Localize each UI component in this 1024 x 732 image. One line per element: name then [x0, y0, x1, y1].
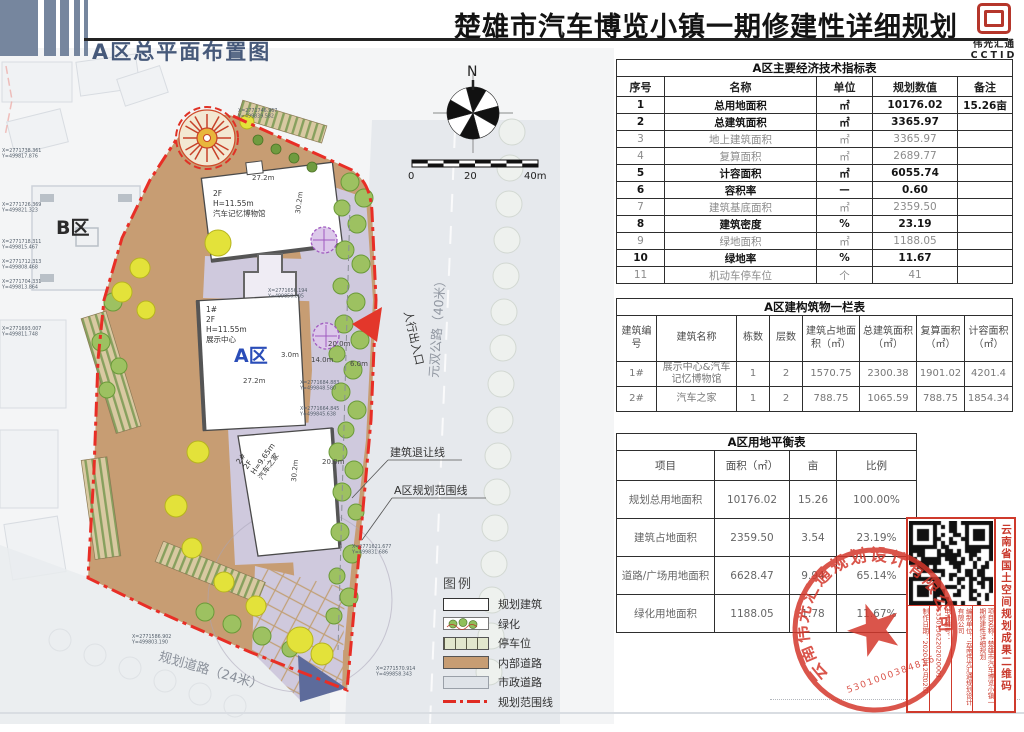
- svg-text:X=2771746.967Y=499839.582: X=2771746.967Y=499839.582: [237, 108, 277, 120]
- svg-text:H=11.55m: H=11.55m: [206, 325, 247, 334]
- buildings-table: A区建构筑物一栏表 建筑编号建筑名称 栋数层数 建筑占地面积（㎡）总建筑面积（㎡…: [616, 298, 1013, 412]
- svg-text:X=2771684.883Y=499848.580: X=2771684.883Y=499848.580: [299, 380, 339, 392]
- north-label: N: [467, 64, 477, 80]
- svg-text:27.2m: 27.2m: [243, 377, 266, 385]
- indicator-row: 5计容面积㎡6055.74: [617, 165, 1013, 182]
- legend-label: 内部道路: [498, 655, 542, 671]
- legend-green-swatch: [443, 617, 489, 630]
- svg-text:建筑退让线: 建筑退让线: [390, 445, 445, 459]
- indicator-row: 7建筑基底面积㎡2359.50: [617, 199, 1013, 216]
- svg-text:汽车记忆博物馆: 汽车记忆博物馆: [213, 208, 266, 218]
- indicator-row: 8建筑密度%23.19: [617, 216, 1013, 233]
- svg-text:14.0m: 14.0m: [311, 356, 334, 364]
- svg-text:20: 20: [464, 171, 477, 182]
- building-row: 1#展示中心&汽车记忆博物馆12 1570.752300.381901.0242…: [617, 362, 1013, 387]
- legend-label: 规划范围线: [498, 694, 553, 710]
- svg-text:0: 0: [408, 171, 414, 182]
- logo-text: 伟光汇通: [970, 36, 1018, 50]
- indicators-table-title: A区主要经济技术指标表: [617, 60, 1013, 77]
- indicator-row: 10绿地率%11.67: [617, 250, 1013, 267]
- land-balance-table-title: A区用地平衡表: [617, 434, 917, 451]
- indicator-row: 9绿地面积㎡1188.05: [617, 233, 1013, 250]
- stamp-star-icon: [840, 595, 907, 661]
- indicator-row: 2总建筑面积㎡3365.97: [617, 114, 1013, 131]
- svg-text:X=2771570.914Y=499858.343: X=2771570.914Y=499858.343: [375, 666, 415, 678]
- legend-label: 绿化: [498, 616, 520, 632]
- legend: 图例 规划建筑 绿化 停车位 内部道路 市政道路 规划范围线: [443, 573, 618, 714]
- building-row: 2#汽车之家12 788.751065.59788.751854.34: [617, 387, 1013, 412]
- svg-text:20.0m: 20.0m: [328, 340, 351, 348]
- company-logo: 伟光汇通 CCTID: [970, 3, 1018, 61]
- stamp-number: 5301000384816: [846, 654, 938, 696]
- legend-internal-road-swatch: [443, 656, 489, 669]
- svg-text:H=11.55m: H=11.55m: [213, 199, 254, 208]
- legend-municipal-road-swatch: [443, 676, 489, 689]
- drawing-title: A区总平面布置图: [92, 36, 271, 66]
- svg-text:1#: 1#: [206, 305, 217, 314]
- svg-text:A区规划范围线: A区规划范围线: [394, 483, 468, 497]
- svg-text:2F: 2F: [206, 315, 215, 324]
- svg-text:20.0m: 20.0m: [322, 458, 345, 466]
- company-stamp: 云南伟光汇通规划设计有限公司 5301000384816: [770, 528, 980, 732]
- legend-label: 停车位: [498, 635, 531, 651]
- qr-side-label: 云南省国土空间规划成果二维码: [994, 519, 1014, 711]
- svg-text:X=2771586.902Y=499803.190: X=2771586.902Y=499803.190: [131, 634, 171, 646]
- logo-subtext: CCTID: [970, 50, 1018, 61]
- svg-text:X=2771704.331Y=499813.864: X=2771704.331Y=499813.864: [1, 279, 41, 291]
- indicator-row: 11机动车停车位个41: [617, 267, 1013, 284]
- buildings-table-title: A区建构筑物一栏表: [617, 299, 1013, 316]
- svg-text:X=2771621.677Y=499831.686: X=2771621.677Y=499831.686: [351, 544, 391, 556]
- svg-text:2F: 2F: [213, 189, 222, 198]
- legend-label: 规划建筑: [498, 596, 542, 612]
- svg-text:展示中心: 展示中心: [206, 334, 236, 344]
- svg-text:X=2771718.311Y=499815.467: X=2771718.311Y=499815.467: [1, 239, 41, 251]
- legend-parking-swatch: [443, 637, 489, 650]
- indicators-table: A区主要经济技术指标表 序号名称 单位规划数值 备注 1总用地面积㎡10176.…: [616, 59, 1013, 284]
- svg-text:X=2771656.194Y=499850.805: X=2771656.194Y=499850.805: [267, 288, 307, 300]
- legend-title: 图例: [443, 573, 618, 592]
- svg-text:X=2771693.007Y=499811.748: X=2771693.007Y=499811.748: [1, 326, 41, 338]
- svg-text:27.2m: 27.2m: [252, 174, 275, 182]
- svg-text:X=2771664.845Y=499845.638: X=2771664.845Y=499845.638: [299, 406, 339, 418]
- zone-b-label: B区: [56, 217, 89, 239]
- zone-a-label: A区: [234, 345, 268, 367]
- svg-text:X=2771726.369Y=499821.323: X=2771726.369Y=499821.323: [1, 202, 41, 214]
- indicator-row: 3地上建筑面积㎡3365.97: [617, 131, 1013, 148]
- legend-label: 市政道路: [498, 674, 542, 690]
- logo-icon: [977, 3, 1011, 34]
- indicator-row: 4复算面积㎡2689.77: [617, 148, 1013, 165]
- svg-text:X=2771738.361Y=499817.876: X=2771738.361Y=499817.876: [1, 148, 41, 160]
- svg-text:6.0m: 6.0m: [350, 360, 368, 368]
- sun-plaza: [176, 107, 238, 169]
- svg-text:40m: 40m: [524, 171, 546, 182]
- svg-text:3.0m: 3.0m: [281, 351, 299, 359]
- indicator-row: 6容积率—0.60: [617, 182, 1013, 199]
- legend-building-swatch: [443, 598, 489, 611]
- indicator-row: 1总用地面积㎡10176.0215.26亩: [617, 97, 1013, 114]
- legend-boundary-swatch: [443, 700, 489, 703]
- svg-text:X=2771712.313Y=499808.468: X=2771712.313Y=499808.468: [1, 259, 41, 271]
- land-balance-row: 规划总用地面积10176.0215.26100.00%: [617, 481, 917, 519]
